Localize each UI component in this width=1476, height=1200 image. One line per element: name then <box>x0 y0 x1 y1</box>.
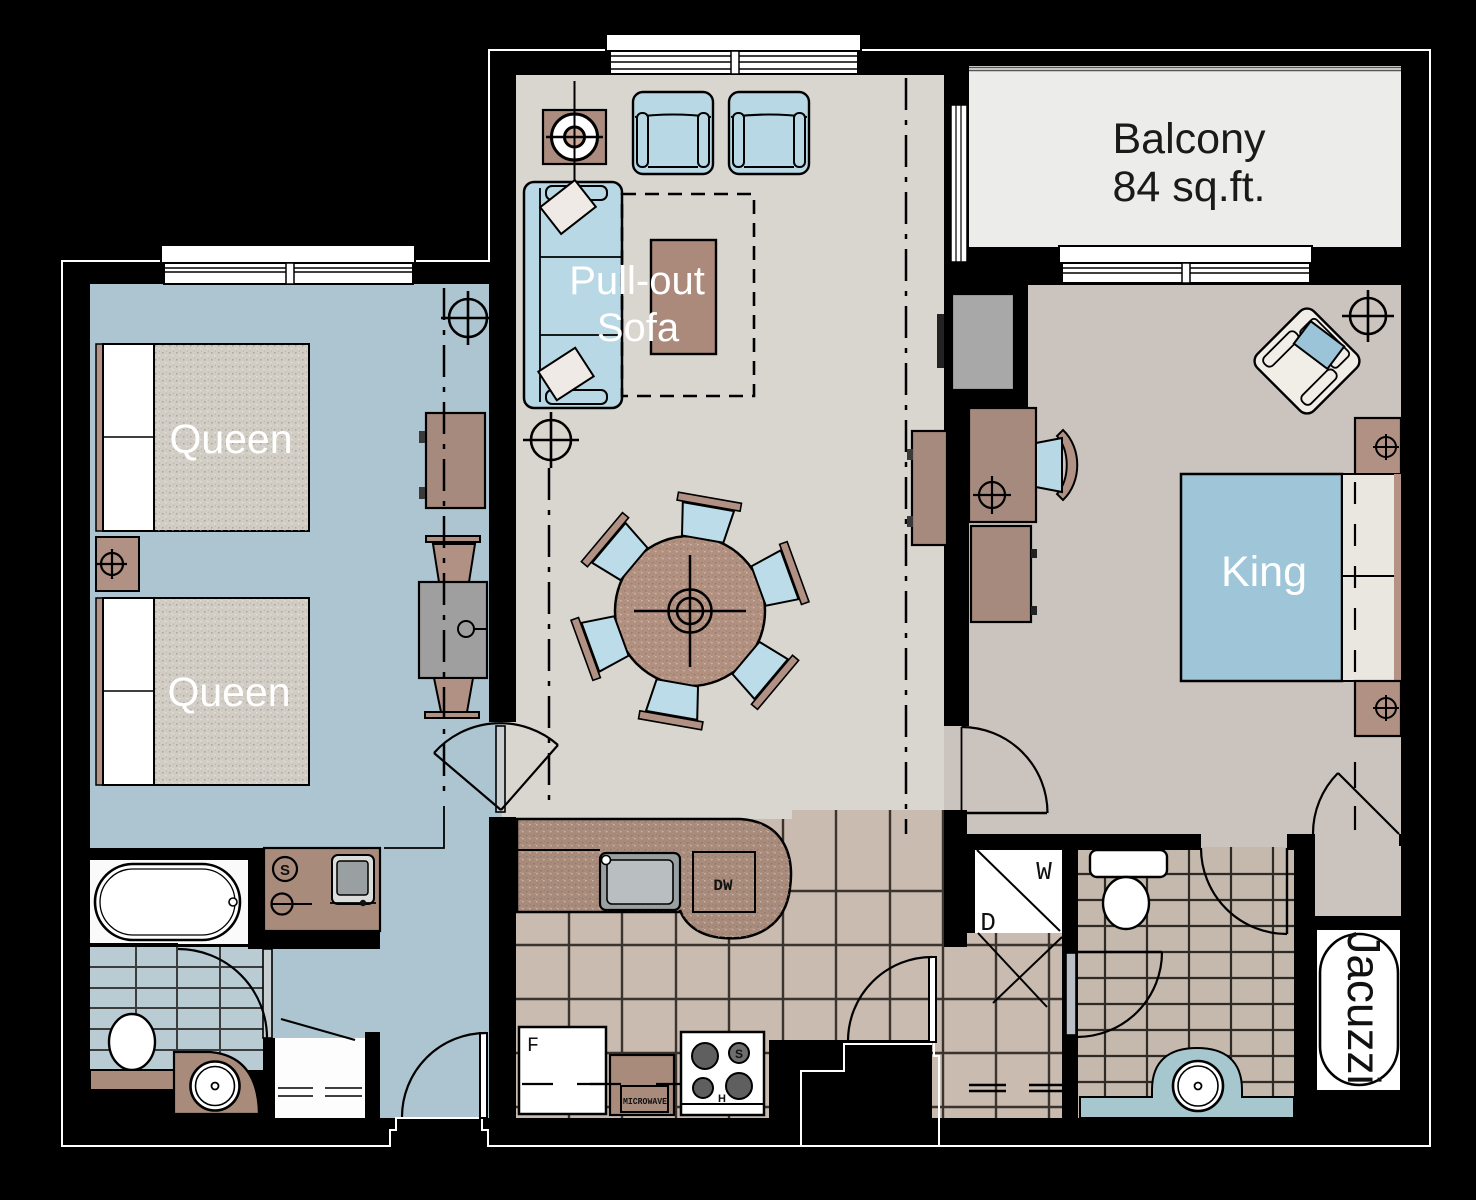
svg-text:84 sq.ft.: 84 sq.ft. <box>1113 163 1266 211</box>
svg-text:W: W <box>1036 857 1052 887</box>
svg-text:S: S <box>280 862 290 879</box>
svg-text:DW: DW <box>713 877 733 895</box>
svg-text:MICROWAVE: MICROWAVE <box>623 1096 667 1107</box>
svg-text:Sofa: Sofa <box>597 306 680 350</box>
svg-text:S: S <box>735 1047 743 1061</box>
svg-text:Queen: Queen <box>169 416 292 462</box>
svg-text:Pull-out: Pull-out <box>569 259 705 303</box>
svg-text:Jacuzzi: Jacuzzi <box>1338 931 1390 1084</box>
svg-text:F: F <box>527 1035 539 1058</box>
svg-text:H: H <box>718 1093 726 1105</box>
svg-text:Balcony: Balcony <box>1113 115 1266 163</box>
svg-text:D: D <box>980 908 996 938</box>
svg-text:Queen: Queen <box>167 669 290 715</box>
svg-text:King: King <box>1221 548 1307 596</box>
